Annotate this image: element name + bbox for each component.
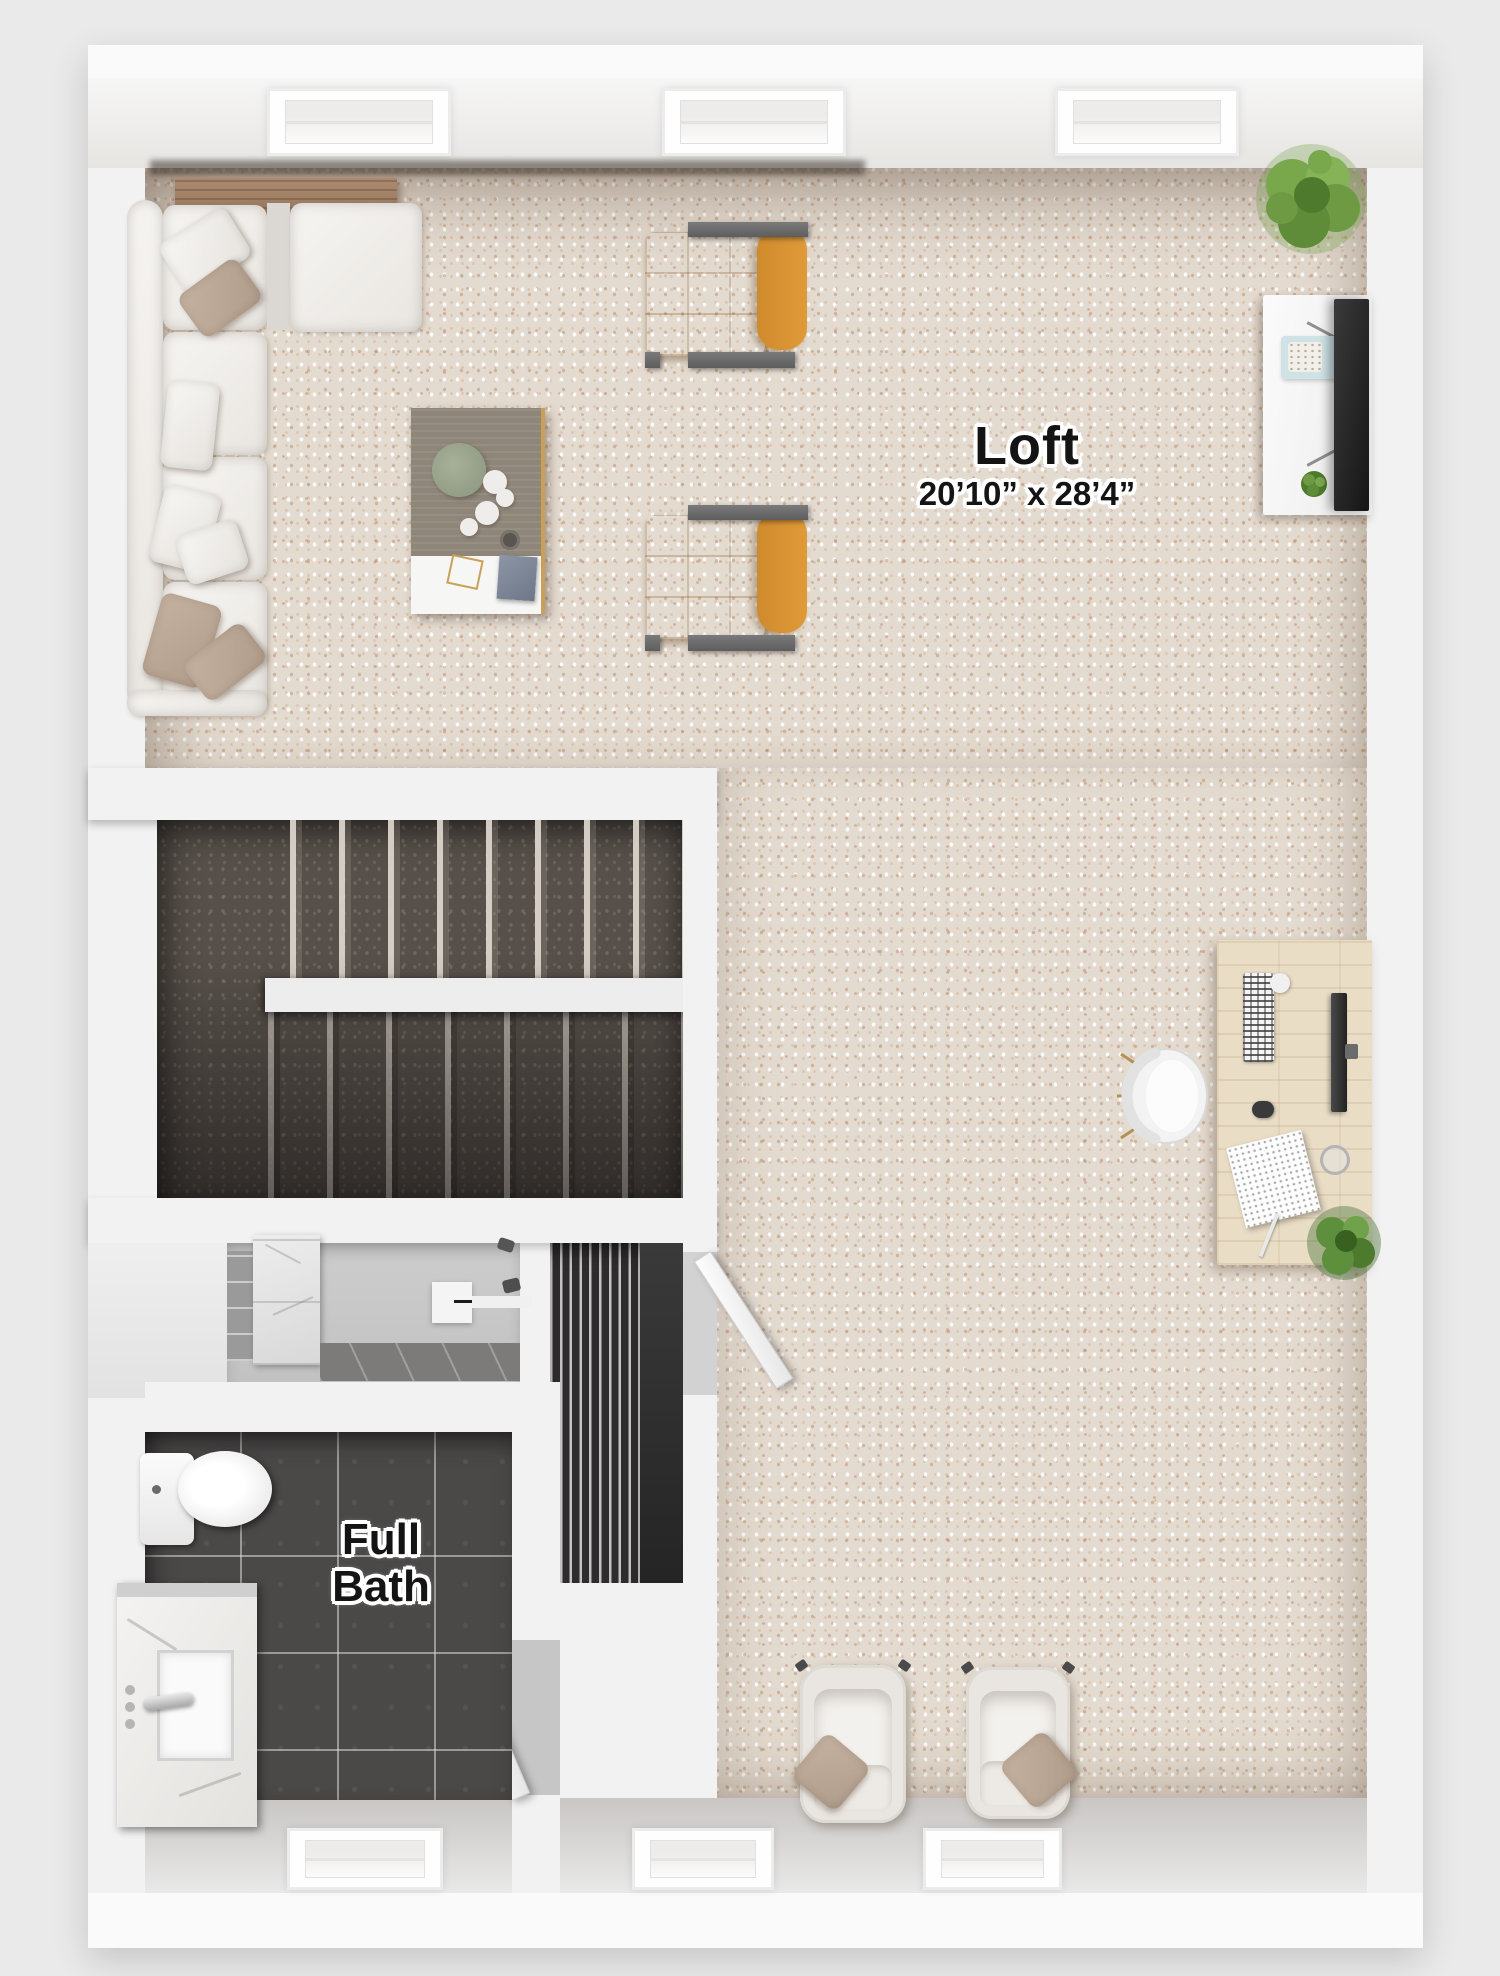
- room-name: Loft: [877, 418, 1177, 474]
- faucet-knob: [125, 1719, 135, 1729]
- faucet-knob: [125, 1702, 135, 1712]
- accent-chair-2: [645, 505, 808, 651]
- room-name-line2: Bath: [261, 1563, 501, 1610]
- faucet-knob: [125, 1685, 135, 1695]
- bath-east-wall-lower: [512, 1795, 560, 1893]
- shower-handle-icon: [502, 1277, 522, 1294]
- window-glass: [941, 1840, 1044, 1878]
- cup: [500, 530, 520, 550]
- desk-puck: [1270, 973, 1290, 993]
- window-bath: [287, 1828, 443, 1890]
- chair-foot: [645, 352, 660, 368]
- armchair-1: [800, 1665, 906, 1823]
- window-top-2: [662, 88, 846, 156]
- chair-arm: [688, 635, 795, 651]
- small-plant-icon: [1299, 469, 1329, 499]
- desk-plant-icon: [1304, 1203, 1384, 1283]
- coffee-table: [411, 408, 545, 614]
- potted-plant-icon: [1252, 140, 1370, 258]
- louvered-closet-door: [550, 1243, 640, 1585]
- shower-south-wall: [145, 1382, 560, 1432]
- loft-label: Loft 20’10” x 28’4”: [877, 418, 1177, 512]
- plate: [496, 489, 514, 507]
- sofa-frame: [267, 203, 290, 330]
- keyboard: [1243, 973, 1274, 1062]
- window-bottom-2: [923, 1828, 1062, 1890]
- wall-block: [88, 1243, 227, 1398]
- stair-landing-rail: [265, 978, 683, 1012]
- chair-arm: [688, 505, 808, 520]
- desk: [1217, 940, 1372, 1265]
- stair-treads-lower: [268, 1012, 683, 1198]
- glass-cup: [1320, 1145, 1350, 1175]
- shower-marble-wall: [253, 1235, 320, 1365]
- plate: [460, 518, 478, 536]
- floor-plan-canvas: Loft 20’10” x 28’4” Full Bath: [0, 0, 1500, 1976]
- window-bottom-1: [632, 1828, 774, 1890]
- mouse: [1252, 1101, 1274, 1118]
- service-corridor-floor: [640, 1243, 683, 1590]
- shower-niche: [432, 1282, 472, 1323]
- vanity-edge: [117, 1583, 257, 1597]
- decor-tray: [432, 443, 486, 497]
- stair-treads-upper: [290, 820, 683, 978]
- chair-back: [757, 228, 807, 350]
- stairwell-south-wall: [88, 1198, 717, 1243]
- decor-item: [1288, 342, 1322, 372]
- chair-arm: [688, 352, 795, 368]
- marble-vein: [265, 1244, 301, 1265]
- room-name-line1: Full: [261, 1516, 501, 1563]
- armchair-2: [966, 1667, 1070, 1819]
- full-bath-label: Full Bath: [261, 1516, 501, 1610]
- shower-shelves: [227, 1251, 253, 1361]
- window-top-1: [267, 88, 451, 156]
- marble-vein: [178, 1772, 241, 1797]
- chair-arm: [688, 222, 808, 237]
- stairwell-east-wall: [683, 768, 717, 1252]
- window-glass: [305, 1840, 425, 1878]
- window-glass: [1073, 100, 1221, 144]
- room-dimensions: 20’10” x 28’4”: [877, 476, 1177, 512]
- wall-shadow: [150, 160, 865, 175]
- window-top-3: [1055, 88, 1239, 156]
- marble-vein: [272, 1296, 313, 1316]
- shower-room: [227, 1243, 520, 1382]
- sofa-chaise: [290, 203, 422, 332]
- bath-east-wall-upper: [512, 1432, 560, 1640]
- loft-floor: [717, 768, 1367, 1798]
- monitor-stand: [1345, 1044, 1358, 1059]
- sofa-pillow: [160, 379, 221, 472]
- flush-button: [152, 1485, 161, 1494]
- chair-seat: [645, 232, 765, 356]
- chair-seat: [645, 515, 765, 639]
- south-wall-top: [88, 1893, 1423, 1948]
- vanity: [117, 1583, 257, 1827]
- toilet-bowl: [178, 1451, 272, 1527]
- north-wall-top: [88, 45, 1423, 78]
- magazine: [497, 555, 538, 602]
- desk-chair: [1115, 1044, 1211, 1148]
- wall-block: [560, 1640, 717, 1798]
- decor-tray: [1281, 336, 1338, 379]
- sofa-armrest: [127, 690, 267, 716]
- gold-frame-decor: [446, 554, 484, 590]
- chair-foot: [645, 635, 660, 651]
- accent-chair-1: [645, 222, 808, 368]
- window-glass: [650, 1840, 756, 1878]
- window-glass: [680, 100, 828, 144]
- window-glass: [285, 100, 433, 144]
- table-edge: [541, 408, 545, 614]
- shower-floor-strip: [320, 1343, 520, 1381]
- shower-shelf: [472, 1296, 532, 1308]
- tv-screen: [1334, 299, 1369, 511]
- marble-vein: [127, 1618, 178, 1651]
- plate: [475, 501, 499, 525]
- stairwell-north-wall: [88, 768, 717, 820]
- chair-back: [757, 511, 807, 633]
